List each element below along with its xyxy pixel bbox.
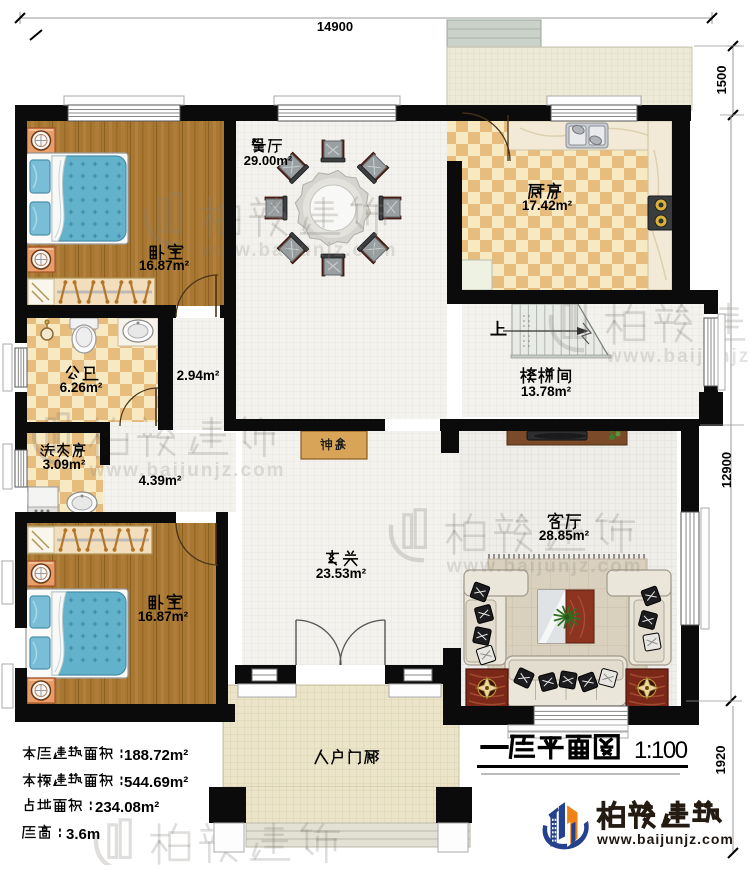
svg-text:1500: 1500 <box>714 66 729 95</box>
svg-text:188.72m²: 188.72m² <box>124 747 188 764</box>
svg-text:2.94m²: 2.94m² <box>177 368 220 383</box>
svg-text:12900: 12900 <box>719 452 734 488</box>
svg-text:1920: 1920 <box>713 746 728 775</box>
svg-text:544.69m²: 544.69m² <box>124 774 188 791</box>
svg-text:16.87m²: 16.87m² <box>139 258 190 273</box>
svg-text:28.85m²: 28.85m² <box>539 528 590 543</box>
svg-text:14900: 14900 <box>317 19 353 34</box>
svg-text:www.baijunjz.com: www.baijunjz.com <box>606 346 750 367</box>
svg-text:6.26m²: 6.26m² <box>60 380 103 395</box>
svg-text:13.78m²: 13.78m² <box>521 384 572 399</box>
svg-text:3.09m²: 3.09m² <box>43 457 86 472</box>
svg-text:www.baijunjz.com: www.baijunjz.com <box>596 831 734 847</box>
svg-text:1:100: 1:100 <box>634 737 688 764</box>
svg-text:4.39m²: 4.39m² <box>139 473 182 488</box>
svg-text:16.87m²: 16.87m² <box>138 609 189 624</box>
svg-text:3.6m: 3.6m <box>66 826 100 843</box>
svg-text:23.53m²: 23.53m² <box>316 566 367 581</box>
svg-text:29.00m²: 29.00m² <box>244 153 293 168</box>
svg-text:17.42m²: 17.42m² <box>522 198 573 213</box>
svg-text:www.baijunjz.com: www.baijunjz.com <box>446 556 643 577</box>
svg-text:234.08m²: 234.08m² <box>95 799 159 816</box>
svg-text:www.baijunjz.com: www.baijunjz.com <box>89 460 286 481</box>
